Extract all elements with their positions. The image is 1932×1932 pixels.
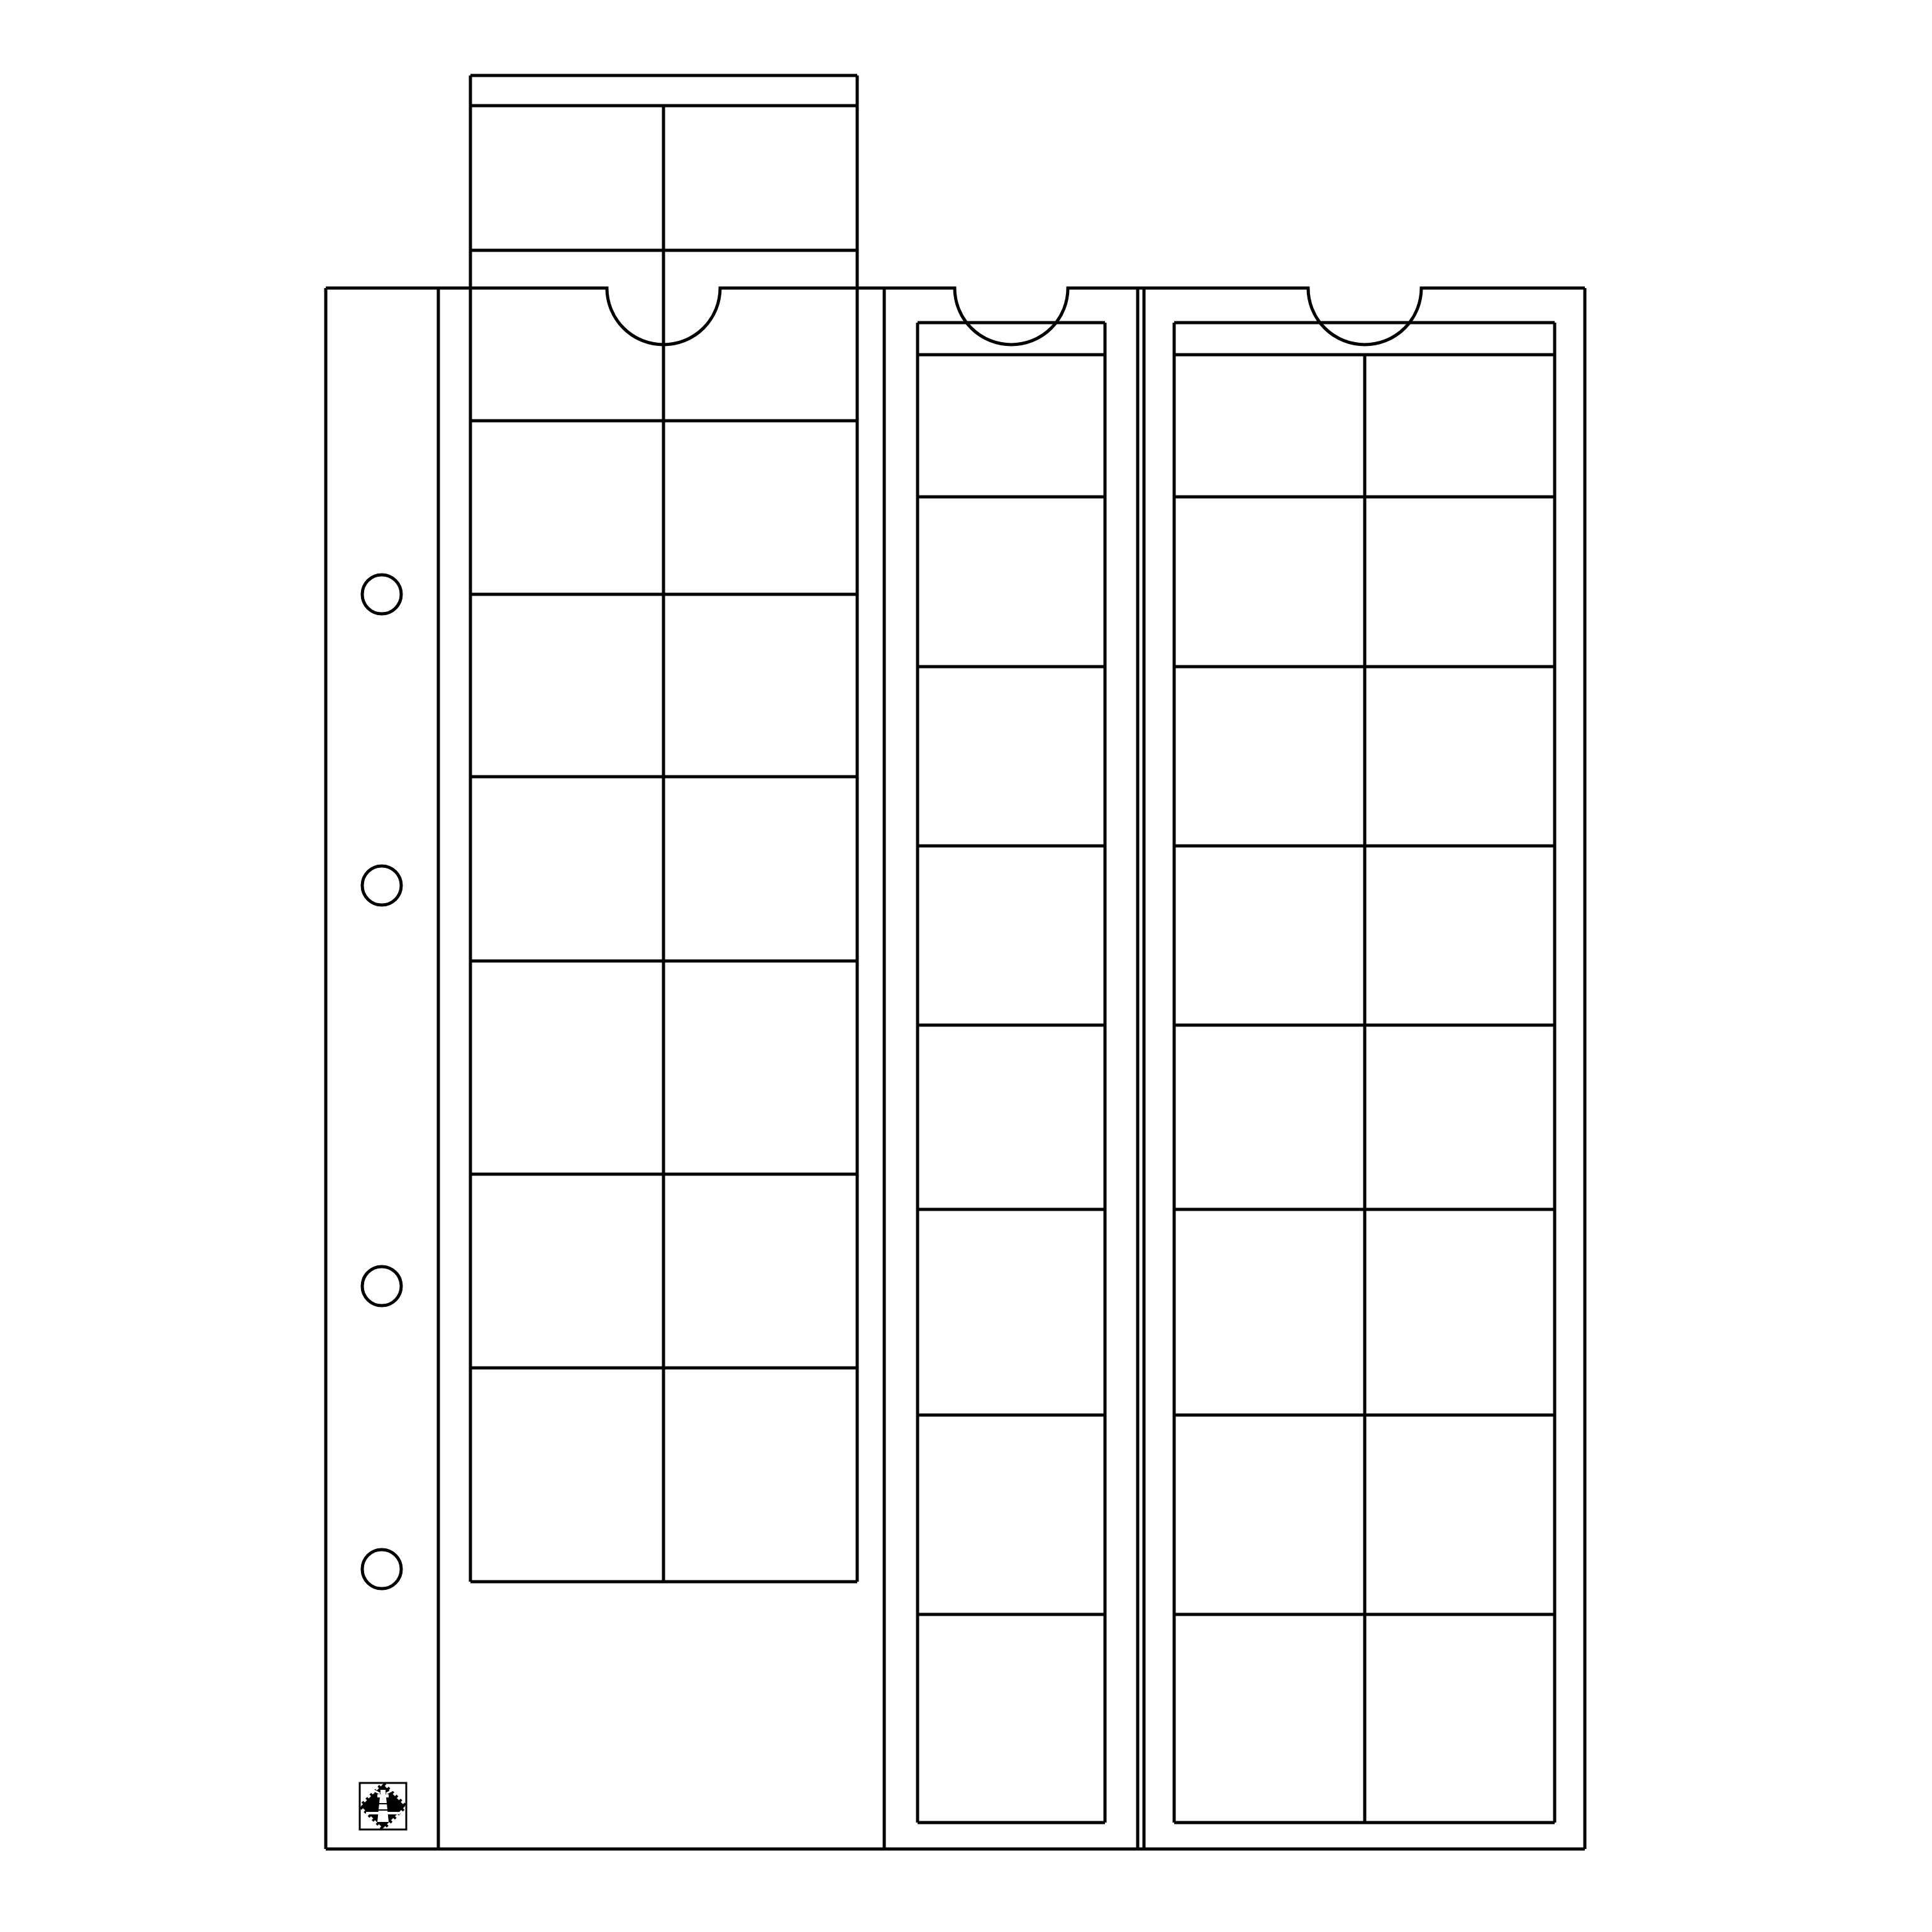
binder-hole	[362, 866, 401, 905]
lighthouse-gallery-icon	[377, 1794, 389, 1797]
binder-hole	[362, 1267, 401, 1306]
coin-sheet-illustration	[0, 0, 1932, 1932]
binder-hole	[362, 1550, 401, 1589]
lighthouse-lamp-icon	[380, 1790, 386, 1794]
binder-hole	[362, 575, 401, 614]
page-background	[0, 0, 1932, 1932]
lighthouse-breakwater-icon	[366, 1812, 400, 1814]
coin-sheet-drawing	[0, 0, 1932, 1932]
